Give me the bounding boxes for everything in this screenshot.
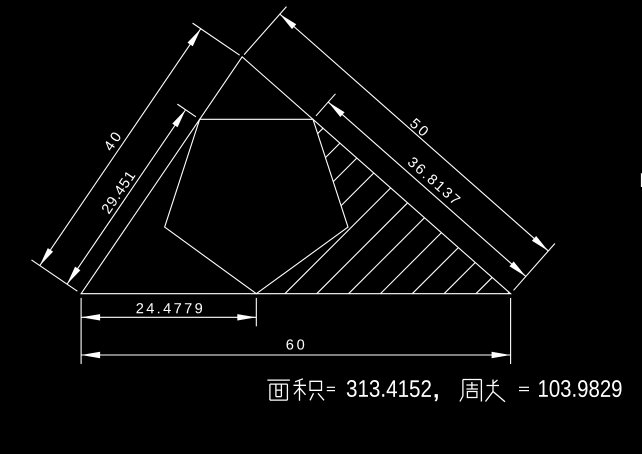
svg-text:60: 60 [286, 337, 305, 353]
svg-text:,: , [433, 377, 439, 403]
svg-text:103.9829: 103.9829 [537, 376, 622, 403]
svg-text:29.451: 29.451 [99, 168, 139, 217]
svg-text:24.4779: 24.4779 [136, 301, 203, 317]
svg-text:50: 50 [406, 116, 431, 141]
svg-text:313.4152: 313.4152 [346, 376, 432, 403]
svg-text:36.8137: 36.8137 [404, 154, 463, 208]
svg-text:40: 40 [101, 130, 125, 155]
